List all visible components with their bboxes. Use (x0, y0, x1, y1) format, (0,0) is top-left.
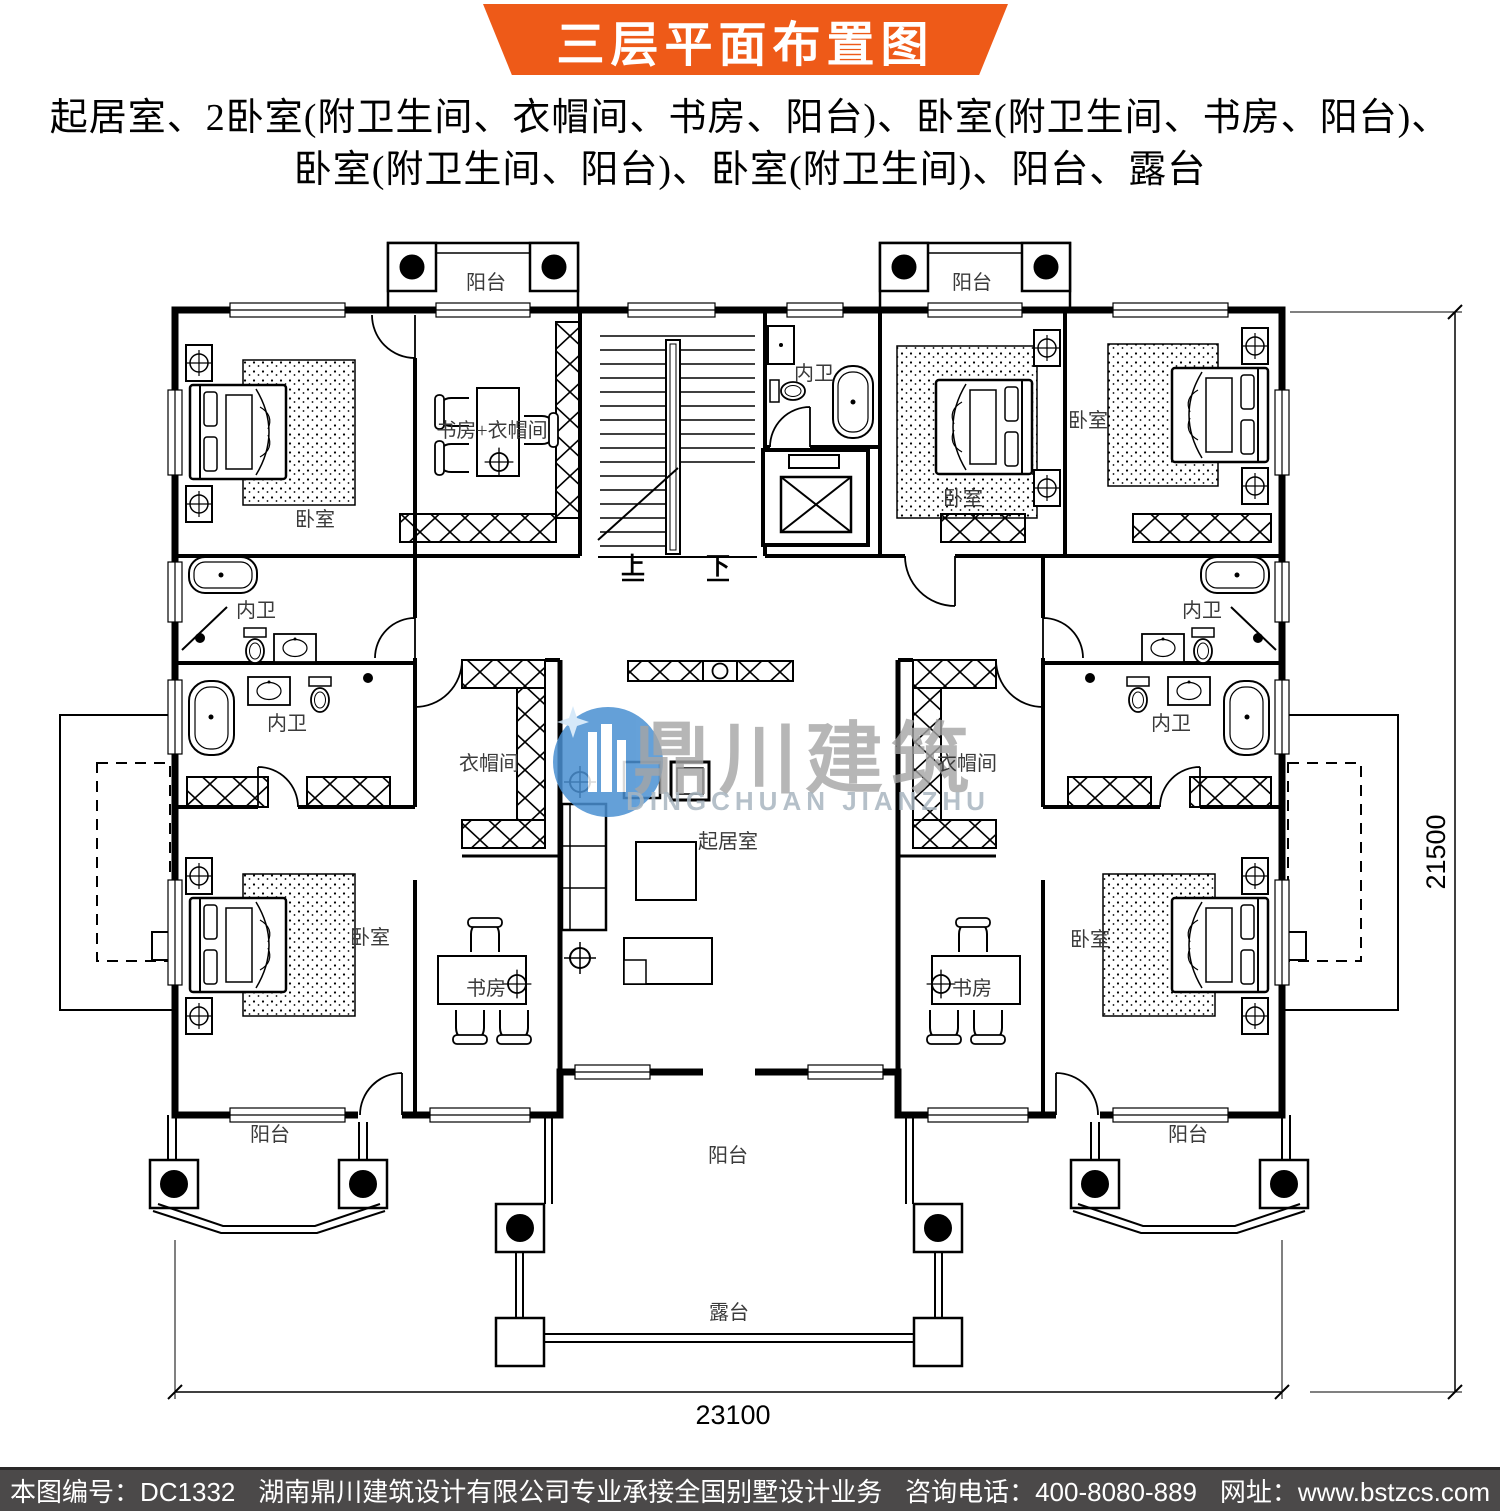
room-label-terrace: 露台 (709, 1301, 749, 1324)
room-label-stairs-up: 上 (621, 553, 645, 580)
dimension-width: 23100 (695, 1400, 770, 1430)
page-title: 三层平面布置图 (556, 5, 934, 75)
watermark: 鼎川建筑 DINGCHUAN JIANZHU (553, 706, 990, 817)
room-label-bedroom-bottom-right: 卧室 (1070, 928, 1110, 951)
room-label-balcony-top-right: 阳台 (952, 271, 992, 294)
room-label-study-bottom-left: 书房 (466, 977, 506, 1000)
room-label-cloakroom-right: 衣帽间 (937, 752, 997, 775)
dimension-height: 21500 (1421, 814, 1451, 889)
stairs (598, 336, 755, 580)
room-label-balcony-bottom-right: 阳台 (1168, 1123, 1208, 1146)
page: 鼎川建筑 DINGCHUAN JIANZHU 阳台阳台卧室书房+衣帽间内卫卧室卧… (0, 0, 1500, 1511)
watermark-en: DINGCHUAN JIANZHU (626, 786, 990, 816)
room-label-bedroom-bottom-left: 卧室 (350, 926, 390, 949)
room-label-balcony-top-left: 阳台 (466, 271, 506, 294)
bottom-side-balconies (150, 1115, 1308, 1233)
footer-bar: 本图编号：DC1332 湖南鼎川建筑设计有限公司专业承接全国别墅设计业务 咨询电… (0, 1467, 1500, 1511)
room-label-bedroom-top-left: 卧室 (295, 508, 335, 531)
room-label-stairs-down: 下 (706, 554, 730, 580)
website: 网址：www.bstzcs.com (1220, 1472, 1490, 1509)
room-label-bedroom-top-right: 卧室 (1068, 409, 1108, 432)
room-summary-line-2: 卧室(附卫生间、阳台)、卧室(附卫生间)、阳台、露台 (0, 144, 1500, 196)
room-summary-line-1: 起居室、2卧室(附卫生间、衣帽间、书房、阳台)、卧室(附卫生间、书房、阳台)、 (0, 92, 1500, 144)
room-label-bath-left-upper: 内卫 (236, 599, 276, 622)
room-label-bath-top-center: 内卫 (794, 362, 834, 385)
room-label-bath-right-upper: 内卫 (1182, 599, 1222, 622)
title-banner: 三层平面布置图 (483, 4, 1008, 75)
company-name: 湖南鼎川建筑设计有限公司专业承接全国别墅设计业务 (258, 1472, 882, 1509)
room-label-balcony-bottom-left: 阳台 (250, 1123, 290, 1146)
drawing-number: 本图编号：DC1332 (10, 1472, 235, 1509)
floor-plan-svg: 鼎川建筑 DINGCHUAN JIANZHU 阳台阳台卧室书房+衣帽间内卫卧室卧… (0, 0, 1500, 1511)
room-label-bath-right-lower: 内卫 (1151, 712, 1191, 735)
elevator (763, 450, 868, 545)
room-label-bath-left-lower: 内卫 (267, 712, 307, 735)
room-label-study-bottom-right: 书房 (952, 977, 992, 1000)
room-label-study-cloak-top-left: 书房+衣帽间 (436, 419, 547, 442)
room-label-cloakroom-left: 衣帽间 (459, 752, 519, 775)
room-label-balcony-bottom-center: 阳台 (708, 1144, 748, 1167)
room-label-bedroom-top-center-right: 卧室 (943, 487, 983, 510)
phone-number: 咨询电话：400-8080-889 (905, 1472, 1197, 1509)
room-summary: 起居室、2卧室(附卫生间、衣帽间、书房、阳台)、卧室(附卫生间、书房、阳台)、 … (0, 92, 1500, 196)
room-label-living-room: 起居室 (698, 830, 758, 853)
